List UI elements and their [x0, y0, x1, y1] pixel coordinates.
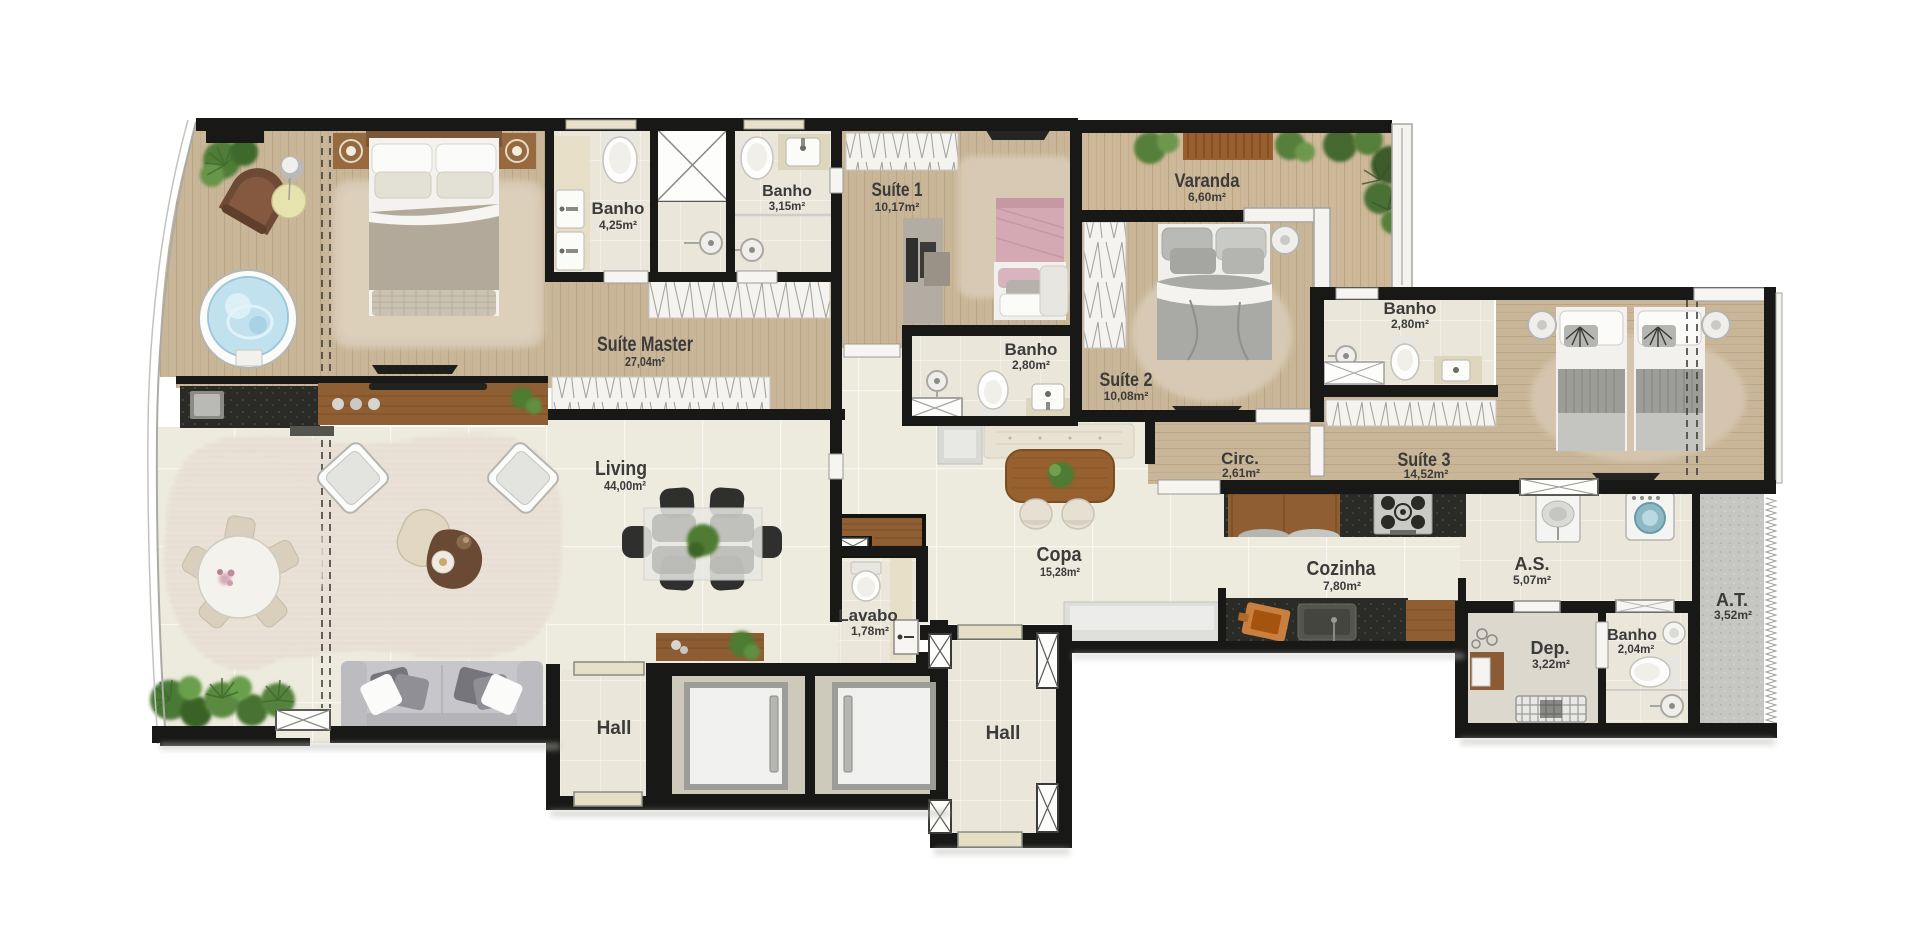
- svg-text:15,28m²: 15,28m²: [1040, 565, 1080, 579]
- svg-text:A.S.: A.S.: [1514, 554, 1549, 574]
- svg-text:3,22m²: 3,22m²: [1532, 657, 1570, 671]
- svg-text:6,60m²: 6,60m²: [1188, 190, 1226, 204]
- svg-text:2,61m²: 2,61m²: [1222, 466, 1260, 480]
- svg-text:Varanda: Varanda: [1175, 171, 1240, 192]
- svg-text:2,80m²: 2,80m²: [1391, 317, 1429, 331]
- svg-text:Banho: Banho: [762, 183, 812, 200]
- svg-text:10,08m²: 10,08m²: [1104, 389, 1149, 403]
- svg-text:2,80m²: 2,80m²: [1012, 358, 1050, 372]
- svg-text:Banho: Banho: [592, 199, 645, 218]
- svg-text:Banho: Banho: [1384, 299, 1437, 318]
- svg-text:Copa: Copa: [1037, 544, 1083, 566]
- svg-text:27,04m²: 27,04m²: [625, 355, 665, 369]
- svg-text:Dep.: Dep.: [1530, 638, 1569, 658]
- svg-text:10,17m²: 10,17m²: [875, 200, 920, 214]
- svg-text:Banho: Banho: [1005, 340, 1058, 359]
- svg-text:Suíte Master: Suíte Master: [597, 333, 693, 356]
- svg-text:4,25m²: 4,25m²: [599, 218, 637, 232]
- svg-text:Hall: Hall: [986, 723, 1021, 744]
- svg-text:Lavabo: Lavabo: [838, 606, 898, 625]
- svg-text:Banho: Banho: [1607, 627, 1657, 644]
- svg-text:Cozinha: Cozinha: [1307, 558, 1377, 580]
- svg-text:A.T.: A.T.: [1716, 590, 1748, 610]
- svg-text:1,78m²: 1,78m²: [851, 624, 889, 638]
- svg-text:7,80m²: 7,80m²: [1323, 579, 1361, 593]
- svg-text:Suíte 2: Suíte 2: [1100, 370, 1153, 391]
- svg-text:3,52m²: 3,52m²: [1714, 608, 1752, 622]
- svg-text:3,15m²: 3,15m²: [769, 201, 806, 213]
- svg-text:Hall: Hall: [597, 718, 632, 739]
- svg-text:Living: Living: [595, 458, 647, 480]
- svg-text:44,00m²: 44,00m²: [604, 479, 646, 493]
- svg-text:2,04m²: 2,04m²: [1618, 644, 1655, 656]
- svg-text:5,07m²: 5,07m²: [1513, 573, 1551, 587]
- svg-text:Suíte 1: Suíte 1: [872, 180, 923, 201]
- svg-text:14,52m²: 14,52m²: [1404, 467, 1449, 481]
